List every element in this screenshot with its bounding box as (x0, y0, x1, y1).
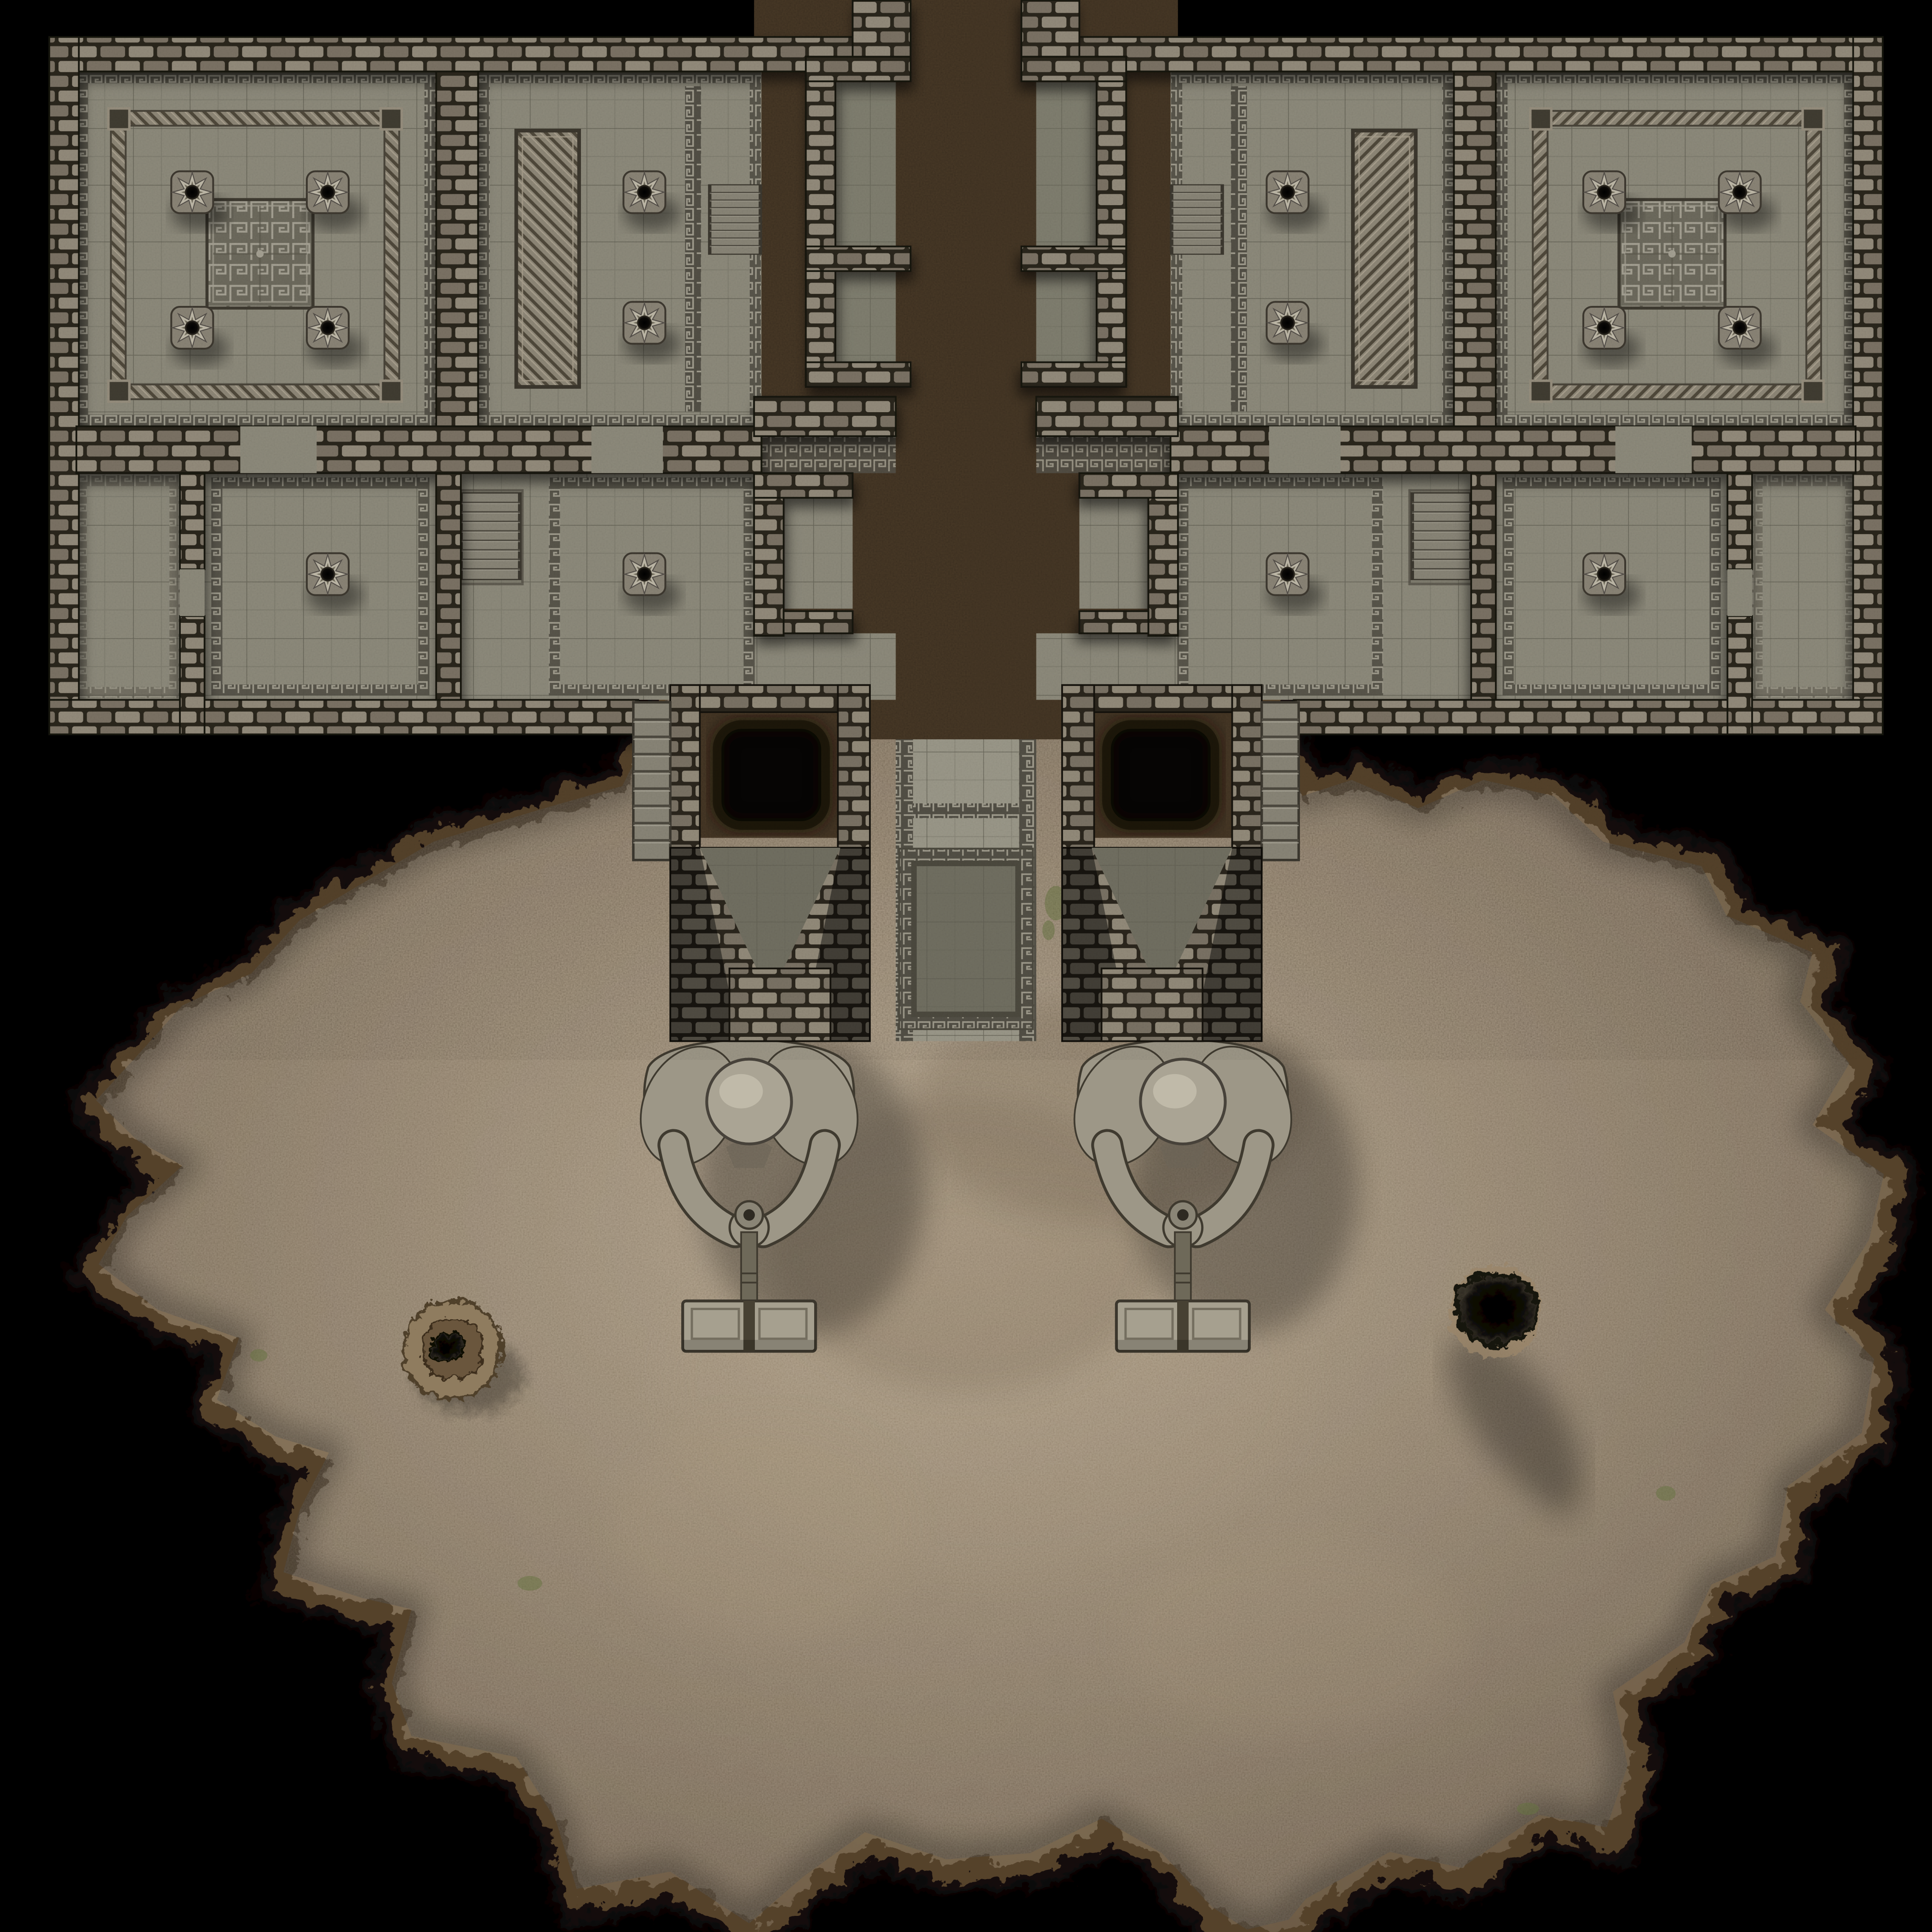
stone-grain-overlay (49, 0, 1883, 1060)
dungeon-battle-map (0, 0, 1932, 1932)
